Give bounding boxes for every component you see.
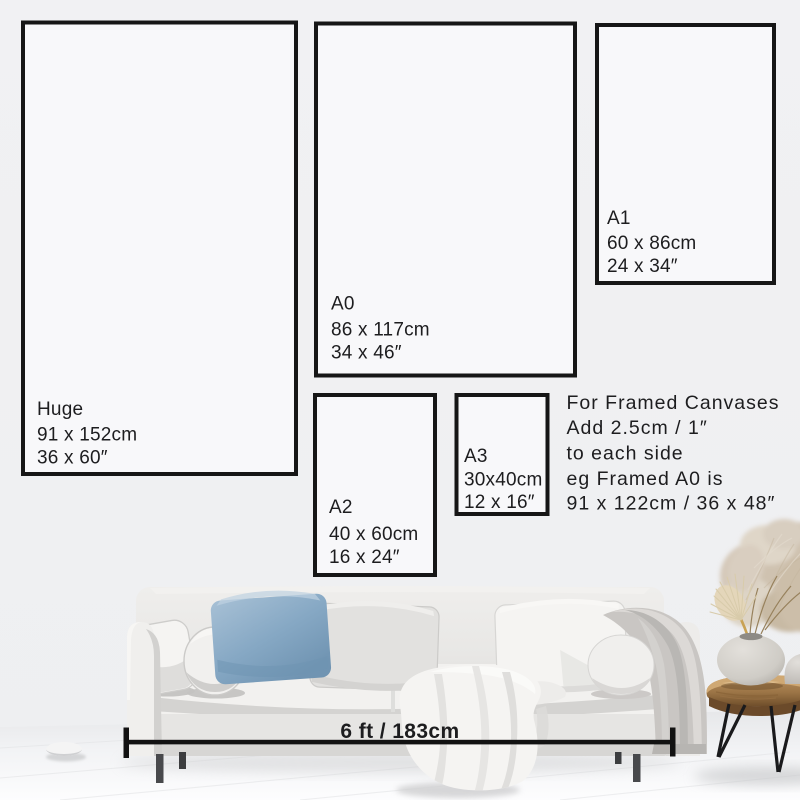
svg-text:91 x 122cm / 36 x 48″: 91 x 122cm / 36 x 48″ xyxy=(567,493,776,515)
svg-text:For Framed Canvases: For Framed Canvases xyxy=(567,392,780,414)
svg-text:eg Framed A0 is: eg Framed A0 is xyxy=(567,468,724,490)
svg-text:34 x 46″: 34 x 46″ xyxy=(331,343,402,364)
svg-text:A2: A2 xyxy=(329,497,353,518)
svg-text:12 x 16″: 12 x 16″ xyxy=(464,492,535,513)
svg-text:A1: A1 xyxy=(607,208,631,229)
svg-text:60 x 86cm: 60 x 86cm xyxy=(607,233,696,254)
svg-text:Huge: Huge xyxy=(37,399,83,420)
svg-text:16 x 24″: 16 x 24″ xyxy=(329,547,400,568)
svg-text:to each side: to each side xyxy=(567,443,684,465)
svg-text:36 x 60″: 36 x 60″ xyxy=(37,448,108,469)
svg-text:A0: A0 xyxy=(331,294,355,315)
svg-text:86 x 117cm: 86 x 117cm xyxy=(331,320,430,341)
svg-text:Add 2.5cm / 1″: Add 2.5cm / 1″ xyxy=(567,417,708,439)
svg-text:6 ft / 183cm: 6 ft / 183cm xyxy=(340,720,459,743)
svg-text:91 x 152cm: 91 x 152cm xyxy=(37,425,137,446)
svg-text:A3: A3 xyxy=(464,446,488,467)
svg-text:40 x 60cm: 40 x 60cm xyxy=(329,524,418,545)
svg-text:24 x 34″: 24 x 34″ xyxy=(607,256,678,277)
svg-text:30x40cm: 30x40cm xyxy=(464,470,543,491)
